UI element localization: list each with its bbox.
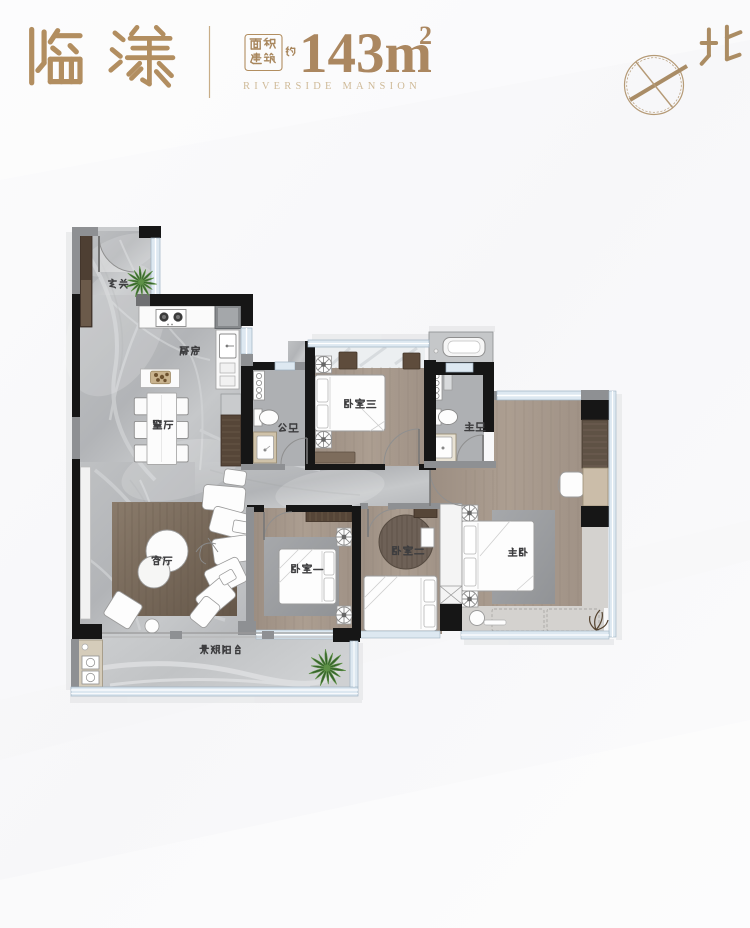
svg-text:143m: 143m xyxy=(299,22,432,85)
svg-text:2: 2 xyxy=(419,21,432,50)
svg-text:RIVERSIDE MANSION: RIVERSIDE MANSION xyxy=(243,81,421,92)
